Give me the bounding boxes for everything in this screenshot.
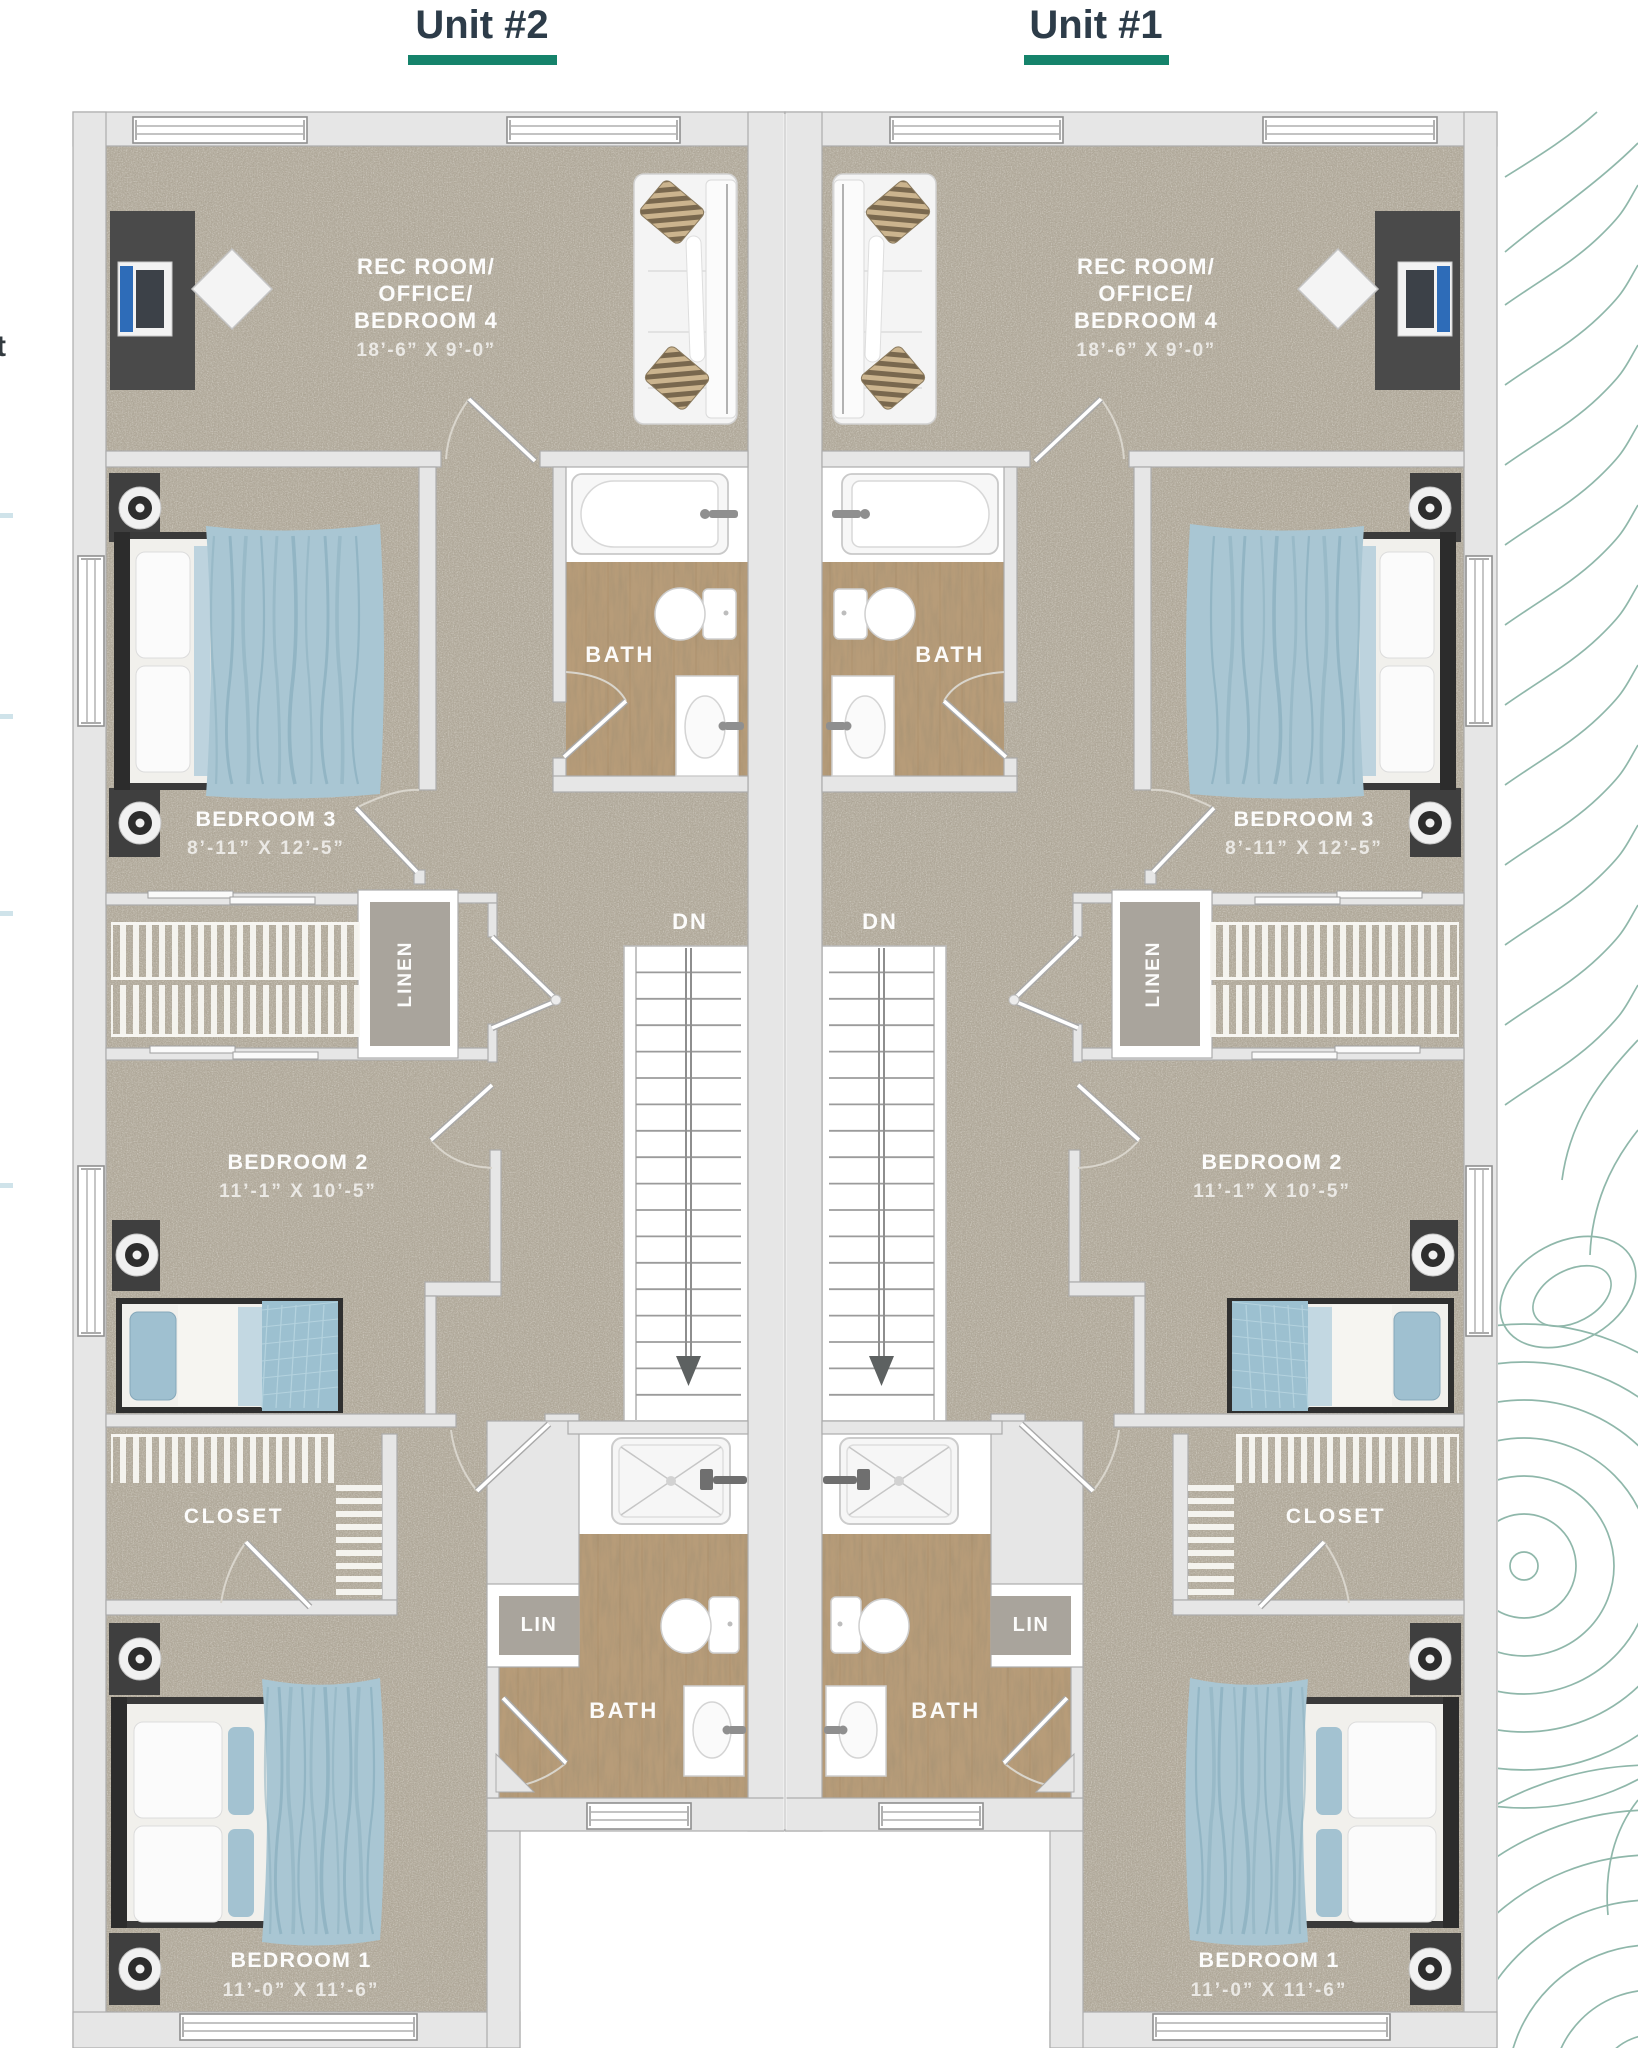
svg-text:BATH: BATH <box>585 642 654 667</box>
svg-text:11’-0” X 11’-6”: 11’-0” X 11’-6” <box>223 1980 380 2001</box>
svg-text:REC ROOM/: REC ROOM/ <box>357 254 495 279</box>
svg-text:LINEN: LINEN <box>395 941 416 1008</box>
svg-text:BATH: BATH <box>915 642 984 667</box>
svg-text:BEDROOM 3: BEDROOM 3 <box>195 807 336 831</box>
svg-text:8’-11” X 12’-5”: 8’-11” X 12’-5” <box>1225 838 1383 859</box>
svg-text:OFFICE/: OFFICE/ <box>1098 281 1193 306</box>
svg-text:Unit #2: Unit #2 <box>415 3 548 47</box>
svg-text:BEDROOM 3: BEDROOM 3 <box>1233 807 1374 831</box>
svg-text:BEDROOM 2: BEDROOM 2 <box>1201 1150 1342 1174</box>
svg-text:11’-1” X 10’-5”: 11’-1” X 10’-5” <box>1193 1181 1351 1202</box>
svg-text:CLOSET: CLOSET <box>1286 1505 1386 1528</box>
svg-text:BEDROOM 1: BEDROOM 1 <box>1198 1948 1339 1972</box>
svg-text:DN: DN <box>672 909 708 934</box>
svg-text:LINEN: LINEN <box>1143 941 1164 1008</box>
svg-text:18’-6” X 9’-0”: 18’-6” X 9’-0” <box>356 340 495 361</box>
svg-text:LIN: LIN <box>521 1614 558 1636</box>
svg-text:18’-6” X 9’-0”: 18’-6” X 9’-0” <box>1076 340 1215 361</box>
svg-text:CLOSET: CLOSET <box>184 1505 284 1528</box>
svg-text:BEDROOM 2: BEDROOM 2 <box>227 1150 368 1174</box>
svg-text:LIN: LIN <box>1013 1614 1050 1636</box>
svg-text:11’-1” X 10’-5”: 11’-1” X 10’-5” <box>219 1181 377 1202</box>
svg-text:BEDROOM 4: BEDROOM 4 <box>354 308 498 333</box>
svg-text:BEDROOM 1: BEDROOM 1 <box>230 1948 371 1972</box>
svg-text:REC ROOM/: REC ROOM/ <box>1077 254 1215 279</box>
svg-text:11’-0” X 11’-6”: 11’-0” X 11’-6” <box>1191 1980 1348 2001</box>
svg-text:BATH: BATH <box>911 1698 980 1723</box>
svg-text:OFFICE/: OFFICE/ <box>378 281 473 306</box>
svg-text:DN: DN <box>862 909 898 934</box>
svg-text:Unit #1: Unit #1 <box>1029 3 1162 47</box>
svg-text:BATH: BATH <box>589 1698 658 1723</box>
svg-text:BEDROOM 4: BEDROOM 4 <box>1074 308 1218 333</box>
svg-text:8’-11” X 12’-5”: 8’-11” X 12’-5” <box>187 838 345 859</box>
svg-text:t: t <box>0 330 6 363</box>
